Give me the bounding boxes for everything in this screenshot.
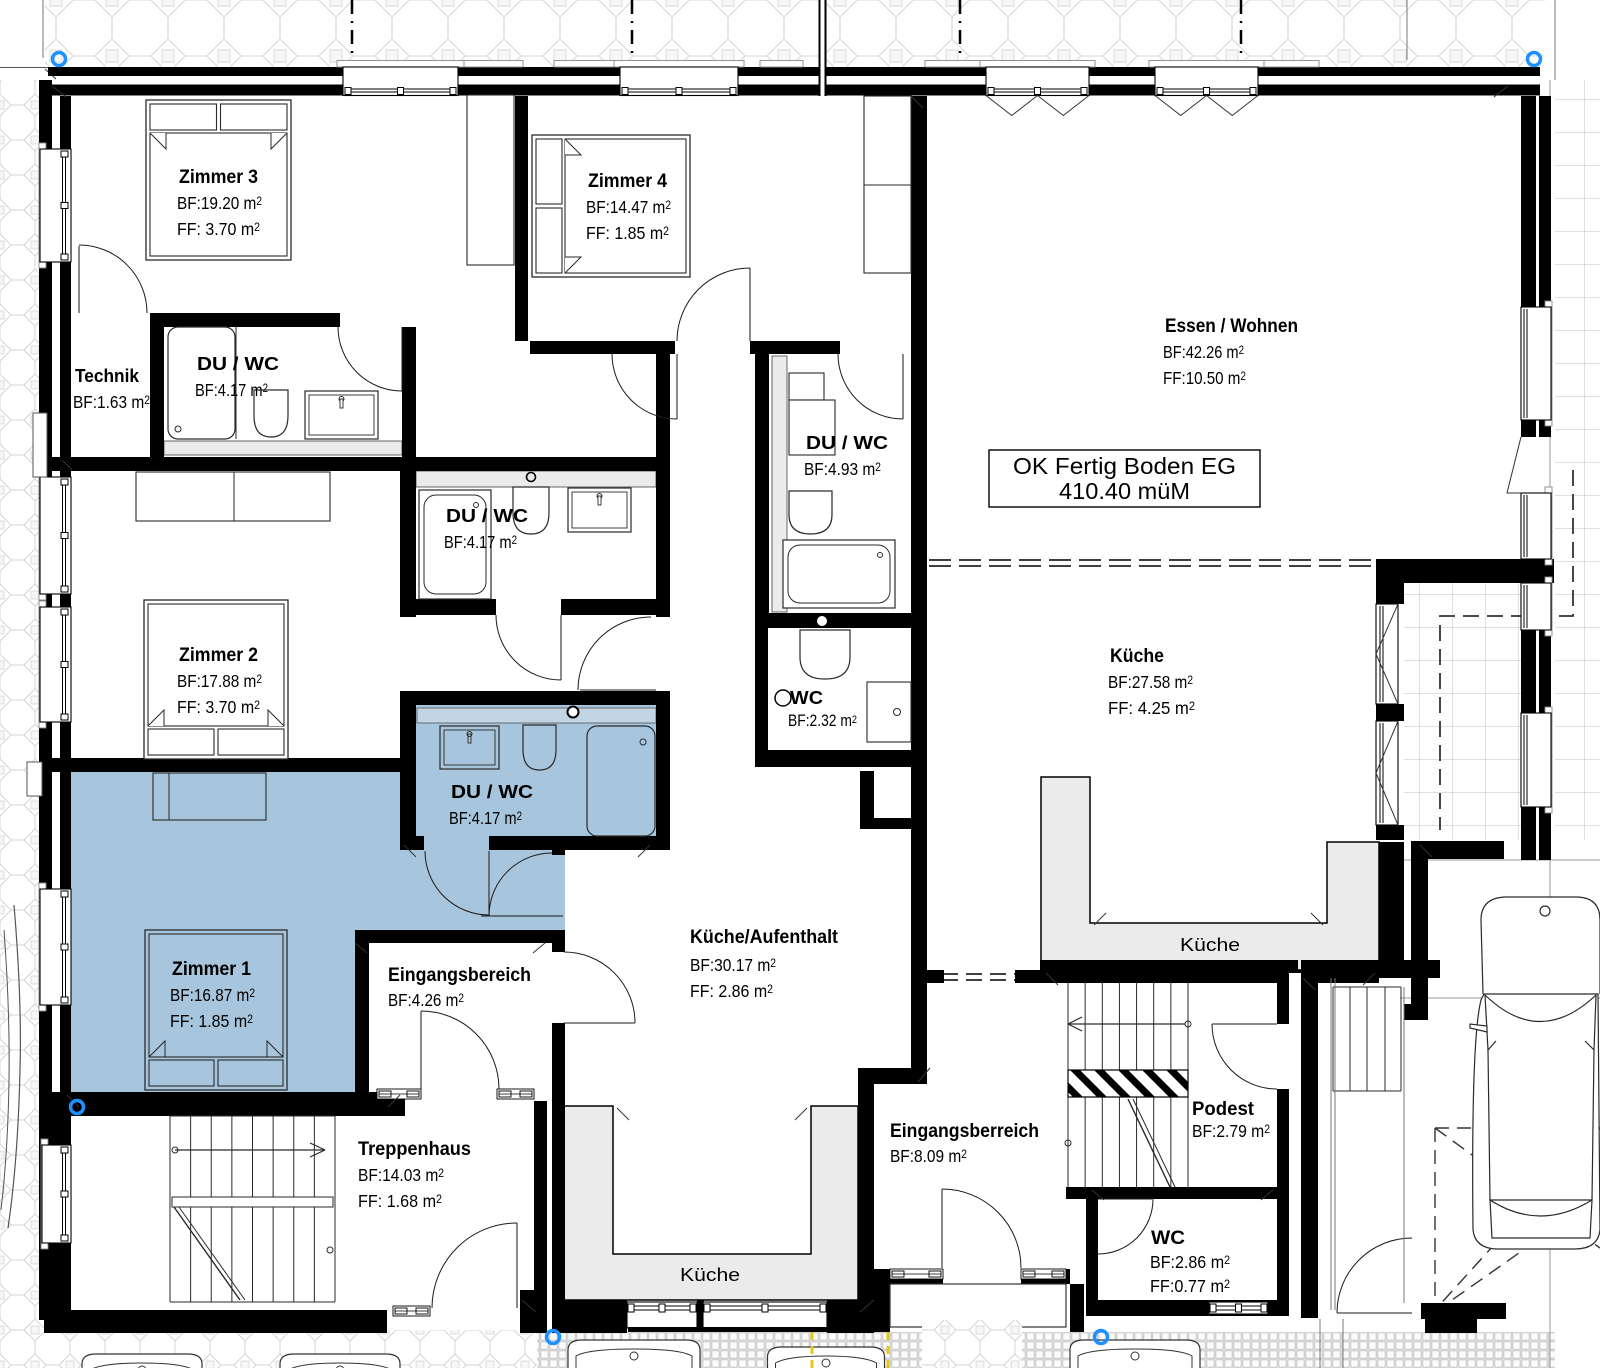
svg-text:BF:14.47 m2: BF:14.47 m2 xyxy=(586,197,671,217)
svg-text:FF: 1.68 m2: FF: 1.68 m2 xyxy=(358,1191,442,1211)
svg-text:BF:19.20 m2: BF:19.20 m2 xyxy=(177,193,262,213)
svg-text:BF:4.17 m2: BF:4.17 m2 xyxy=(444,532,517,552)
svg-text:BF:1.63 m2: BF:1.63 m2 xyxy=(73,392,150,412)
svg-text:Podest: Podest xyxy=(1192,1099,1255,1120)
svg-text:BF:27.58 m2: BF:27.58 m2 xyxy=(1108,672,1193,692)
svg-text:FF: 3.70 m2: FF: 3.70 m2 xyxy=(177,697,260,717)
svg-text:FF: 3.70 m2: FF: 3.70 m2 xyxy=(177,219,260,239)
svg-text:FF: 2.86 m2: FF: 2.86 m2 xyxy=(690,981,773,1001)
svg-text:Küche: Küche xyxy=(680,1265,740,1285)
svg-text:FF: 1.85 m2: FF: 1.85 m2 xyxy=(586,223,669,243)
svg-text:DU / WC: DU / WC xyxy=(806,432,888,453)
svg-text:Küche/Aufenthalt: Küche/Aufenthalt xyxy=(690,927,839,948)
svg-text:BF:2.86 m2: BF:2.86 m2 xyxy=(1150,1252,1230,1272)
svg-text:Technik: Technik xyxy=(75,365,140,386)
svg-text:BF:4.93 m2: BF:4.93 m2 xyxy=(804,459,881,479)
svg-text:WC: WC xyxy=(1151,1228,1185,1249)
svg-text:BF:14.03 m2: BF:14.03 m2 xyxy=(358,1165,444,1185)
svg-text:FF: 1.85 m2: FF: 1.85 m2 xyxy=(170,1011,253,1031)
svg-text:Zimmer 4: Zimmer 4 xyxy=(588,171,667,192)
svg-text:FF:0.77 m2: FF:0.77 m2 xyxy=(1150,1276,1230,1296)
svg-text:FF: 4.25 m2: FF: 4.25 m2 xyxy=(1108,698,1195,718)
svg-text:BF:2.79 m2: BF:2.79 m2 xyxy=(1192,1121,1270,1141)
svg-text:DU / WC: DU / WC xyxy=(446,505,528,526)
svg-text:Küche: Küche xyxy=(1180,935,1240,955)
svg-text:Küche: Küche xyxy=(1110,646,1164,667)
svg-text:Eingangsberreich: Eingangsberreich xyxy=(890,1121,1039,1142)
svg-text:OK Fertig Boden EG: OK Fertig Boden EG xyxy=(1013,453,1236,479)
svg-text:BF:4.17 m2: BF:4.17 m2 xyxy=(195,380,268,400)
svg-text:Zimmer 2: Zimmer 2 xyxy=(179,645,258,666)
svg-text:BF:2.32 m2: BF:2.32 m2 xyxy=(788,712,857,730)
svg-text:Zimmer 1: Zimmer 1 xyxy=(172,959,251,980)
svg-text:Essen / Wohnen: Essen / Wohnen xyxy=(1165,316,1298,337)
svg-text:BF:4.26 m2: BF:4.26 m2 xyxy=(388,990,464,1010)
svg-text:WC: WC xyxy=(790,688,823,708)
svg-text:DU / WC: DU / WC xyxy=(451,781,533,802)
svg-text:BF:17.88 m2: BF:17.88 m2 xyxy=(177,671,262,691)
svg-text:DU / WC: DU / WC xyxy=(197,353,279,374)
svg-text:Eingangsbereich: Eingangsbereich xyxy=(388,965,531,986)
svg-text:BF:8.09 m2: BF:8.09 m2 xyxy=(890,1146,967,1166)
svg-text:BF:42.26 m2: BF:42.26 m2 xyxy=(1163,342,1244,362)
svg-text:BF:30.17 m2: BF:30.17 m2 xyxy=(690,955,776,975)
svg-text:410.40 müM: 410.40 müM xyxy=(1059,478,1190,504)
svg-text:BF:4.17 m2: BF:4.17 m2 xyxy=(449,808,522,828)
svg-text:Zimmer 3: Zimmer 3 xyxy=(179,167,258,188)
svg-text:FF:10.50 m2: FF:10.50 m2 xyxy=(1163,368,1246,388)
svg-text:Treppenhaus: Treppenhaus xyxy=(358,1139,471,1160)
svg-text:BF:16.87 m2: BF:16.87 m2 xyxy=(170,985,255,1005)
